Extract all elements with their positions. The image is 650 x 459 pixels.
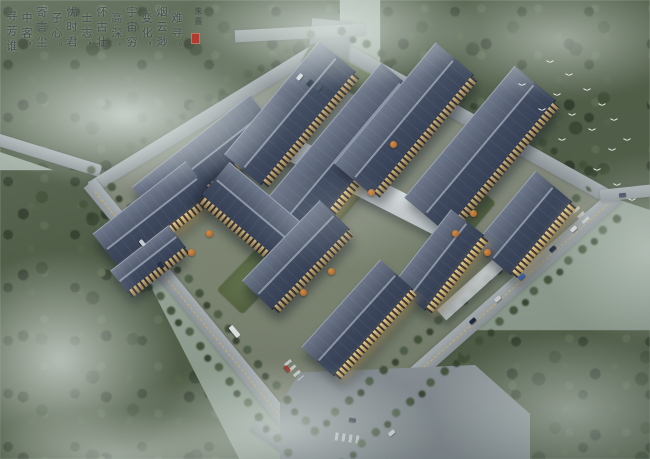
autumn-tree bbox=[390, 141, 397, 148]
bird-icon bbox=[518, 83, 526, 87]
bird-icon bbox=[558, 138, 566, 142]
red-seal bbox=[191, 33, 200, 44]
autumn-tree bbox=[368, 189, 375, 196]
autumn-tree bbox=[206, 230, 213, 237]
autumn-tree bbox=[300, 289, 307, 296]
rendering-canvas: 难寻。 烟云渺 变化， 宇宙穷 高深。 怀古壮 士志， 忧时君 子心。 寄言尘 … bbox=[0, 0, 650, 459]
autumn-tree bbox=[328, 268, 335, 275]
bird-icon bbox=[546, 60, 554, 64]
autumn-tree bbox=[188, 249, 195, 256]
bird-icon bbox=[613, 183, 621, 187]
bird-icon bbox=[608, 148, 616, 152]
bird-icon bbox=[623, 138, 631, 142]
bird-icon bbox=[568, 113, 576, 117]
bird-icon bbox=[583, 88, 591, 92]
autumn-tree bbox=[452, 230, 459, 237]
car bbox=[619, 193, 626, 197]
bird-icon bbox=[588, 128, 596, 132]
bird-icon bbox=[598, 103, 606, 107]
artist-signature: 朱熹 bbox=[193, 7, 204, 27]
bird-icon bbox=[593, 168, 601, 172]
bird-icon bbox=[538, 108, 546, 112]
autumn-tree bbox=[484, 249, 491, 256]
bird-icon bbox=[553, 93, 561, 97]
bird-icon bbox=[628, 198, 636, 202]
bird-icon bbox=[565, 73, 573, 77]
bird-icon bbox=[610, 118, 618, 122]
autumn-tree bbox=[470, 210, 477, 217]
